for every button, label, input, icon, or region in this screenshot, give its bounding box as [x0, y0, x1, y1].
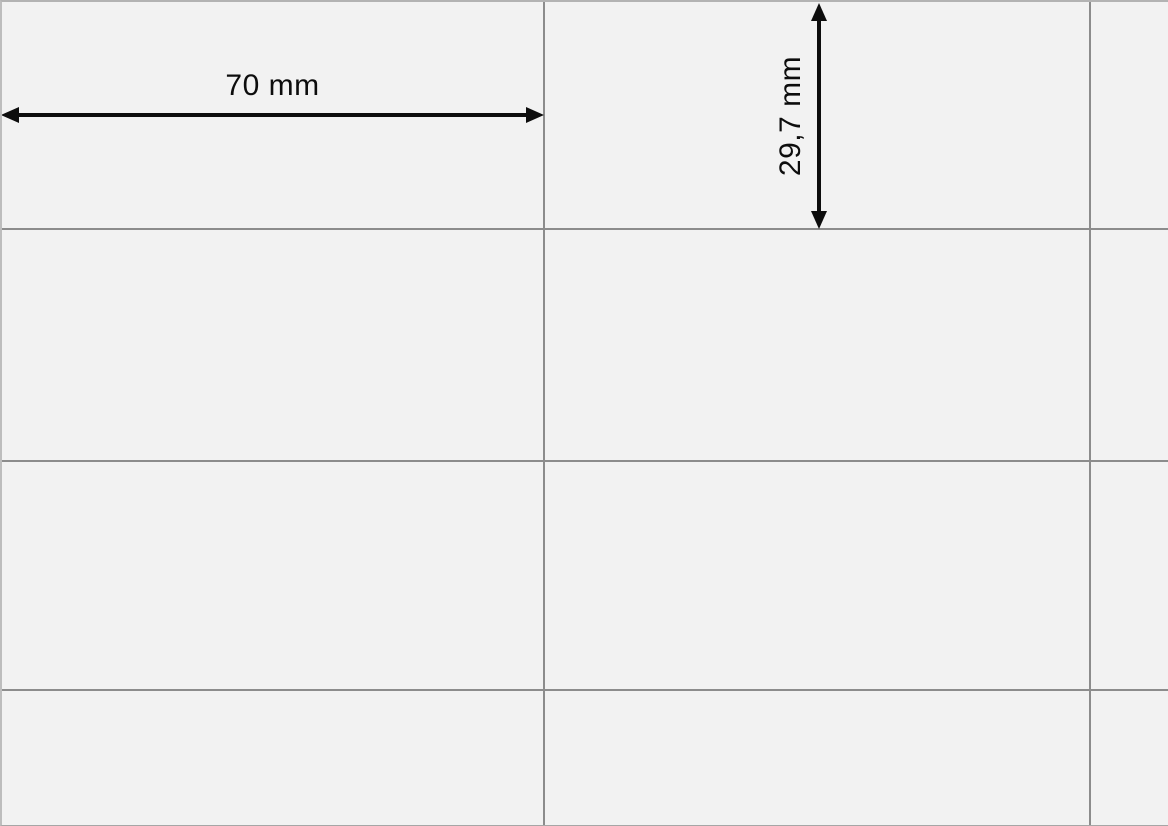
label-cell [1091, 691, 1168, 825]
label-cell [545, 691, 1091, 825]
label-cell [2, 691, 545, 825]
label-cell [545, 2, 1091, 230]
label-cell [1091, 462, 1168, 691]
label-cell [2, 2, 545, 230]
label-cell [2, 230, 545, 462]
label-cell [1091, 2, 1168, 230]
label-cell [545, 462, 1091, 691]
label-sheet: 70 mm 29,7 mm [0, 0, 1168, 826]
label-cell [2, 462, 545, 691]
label-cell [1091, 230, 1168, 462]
label-cell [545, 230, 1091, 462]
